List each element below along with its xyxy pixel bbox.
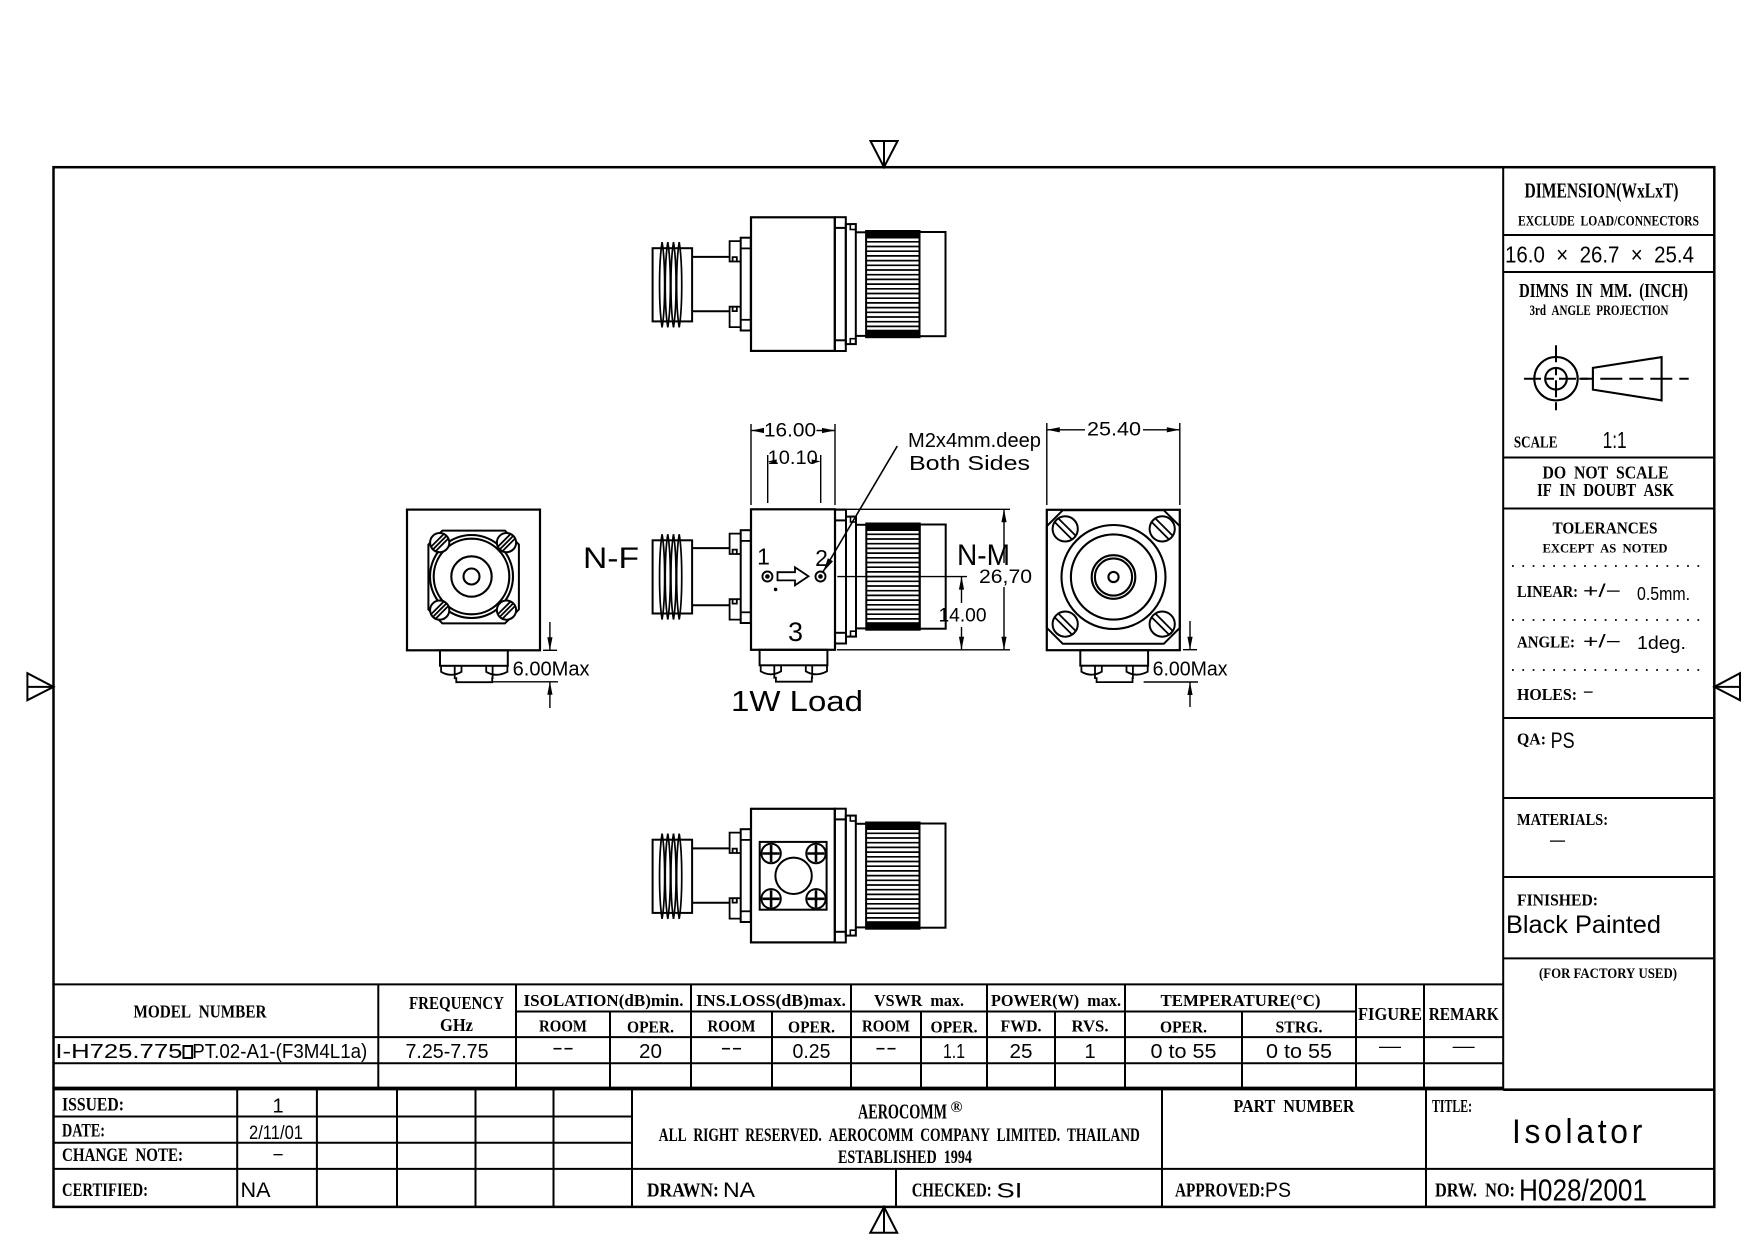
svg-text:0.25: 0.25	[793, 1041, 831, 1063]
svg-text:H028/2001: H028/2001	[1519, 1173, 1647, 1208]
svg-text:6.00Max: 6.00Max	[1153, 659, 1228, 681]
svg-text:−: −	[1583, 682, 1594, 702]
svg-text:DIMENSION(WxLxT): DIMENSION(WxLxT)	[1525, 179, 1679, 203]
svg-text:STRG.: STRG.	[1276, 1018, 1323, 1037]
svg-text:(FOR FACTORY USED): (FOR FACTORY USED)	[1539, 966, 1677, 982]
svg-text:NA: NA	[241, 1179, 271, 1202]
svg-text:CHANGE NOTE:: CHANGE NOTE:	[62, 1145, 183, 1166]
svg-text:1: 1	[757, 544, 770, 570]
svg-text:SCALE: SCALE	[1514, 433, 1558, 452]
svg-text:1: 1	[272, 1096, 283, 1118]
svg-text:ALL RIGHT RESERVED. AEROCOM: ALL RIGHT RESERVED. AEROCOMM COMPANY LIM…	[659, 1125, 1140, 1146]
svg-text:1:1: 1:1	[1603, 427, 1627, 453]
svg-text:7.25-7.75: 7.25-7.75	[406, 1041, 489, 1063]
svg-text:OPER.: OPER.	[931, 1018, 978, 1037]
svg-text:OPER.: OPER.	[788, 1018, 835, 1037]
svg-text:®: ®	[951, 1099, 963, 1116]
svg-text:EXCLUDE LOAD/CONNECTORS: EXCLUDE LOAD/CONNECTORS	[1518, 214, 1699, 230]
svg-text:GHz: GHz	[440, 1015, 473, 1035]
svg-text:20: 20	[639, 1041, 662, 1063]
svg-text:DATE:: DATE:	[62, 1120, 105, 1141]
svg-text:1W Load: 1W Load	[731, 686, 863, 718]
svg-text:0 to 55: 0 to 55	[1266, 1041, 1332, 1063]
svg-text:SI: SI	[996, 1180, 1022, 1203]
svg-text:ANGLE:: ANGLE:	[1517, 633, 1575, 652]
svg-text:14.00: 14.00	[939, 606, 987, 627]
svg-text:APPROVED:: APPROVED:	[1175, 1180, 1265, 1202]
svg-text:26,70: 26,70	[979, 567, 1032, 588]
svg-text:1: 1	[1084, 1041, 1095, 1063]
svg-text:Both Sides: Both Sides	[909, 453, 1030, 475]
svg-text:CHECKED:: CHECKED:	[912, 1180, 992, 1202]
svg-text:MODEL NUMBER: MODEL NUMBER	[134, 1002, 268, 1022]
svg-text:INS.LOSS(dB)max.: INS.LOSS(dB)max.	[696, 991, 846, 1010]
svg-text:N-F: N-F	[583, 542, 639, 575]
svg-text:ISOLATION(dB)min.: ISOLATION(dB)min.	[524, 991, 684, 1010]
svg-text:PS: PS	[1265, 1179, 1291, 1202]
svg-text:IF IN DOUBT ASK: IF IN DOUBT ASK	[1537, 480, 1674, 500]
svg-text:DRAWN:: DRAWN:	[647, 1180, 719, 1202]
svg-text:DRW. NO:: DRW. NO:	[1435, 1180, 1515, 1202]
svg-text:2/11/01: 2/11/01	[249, 1123, 303, 1144]
svg-text:--: --	[721, 1037, 743, 1059]
svg-text:16.0 × 26.7 × 25.4: 16.0 × 26.7 × 25.4	[1505, 242, 1694, 268]
svg-text:−: −	[272, 1145, 283, 1166]
svg-text:VSWR max.: VSWR max.	[874, 991, 964, 1010]
svg-text:ROOM: ROOM	[708, 1017, 756, 1036]
svg-text:QA:: QA:	[1517, 730, 1546, 749]
svg-text:RVS.: RVS.	[1072, 1017, 1109, 1036]
svg-text:EXCEPT AS NOTED: EXCEPT AS NOTED	[1543, 541, 1668, 556]
svg-text:--: --	[552, 1037, 574, 1059]
svg-text:MATERIALS:: MATERIALS:	[1517, 810, 1608, 829]
svg-text:ISSUED:: ISSUED:	[62, 1095, 124, 1116]
svg-text:16.00: 16.00	[764, 421, 816, 442]
svg-text:10.10: 10.10	[768, 448, 818, 469]
svg-text:Isolator: Isolator	[1512, 1113, 1646, 1151]
svg-text:PS: PS	[1551, 728, 1575, 753]
svg-text:DIMNS IN MM. (INCH): DIMNS IN MM. (INCH)	[1519, 280, 1688, 302]
svg-text:POWER(W) max.: POWER(W) max.	[991, 991, 1121, 1010]
svg-text:FIGURE: FIGURE	[1358, 1004, 1422, 1024]
svg-text:AEROCOMM: AEROCOMM	[858, 1100, 947, 1124]
svg-text:LINEAR:: LINEAR:	[1517, 582, 1578, 601]
svg-text:CERTIFIED:: CERTIFIED:	[62, 1180, 148, 1201]
svg-text:Black Painted: Black Painted	[1506, 911, 1661, 939]
svg-text:0 to 55: 0 to 55	[1151, 1041, 1217, 1063]
svg-text:OPER.: OPER.	[627, 1018, 674, 1037]
svg-text:—: —	[1379, 1036, 1401, 1056]
svg-text:1deg.: 1deg.	[1637, 633, 1686, 653]
svg-text:REMARK: REMARK	[1429, 1004, 1499, 1024]
svg-text:25: 25	[1010, 1041, 1033, 1063]
svg-text:PT.02-A1-(F3M4L1a): PT.02-A1-(F3M4L1a)	[192, 1041, 367, 1063]
svg-text:TOLERANCES: TOLERANCES	[1553, 519, 1658, 538]
svg-text:OPER.: OPER.	[1160, 1018, 1207, 1037]
svg-text:ROOM: ROOM	[862, 1017, 910, 1036]
svg-text:+/−: +/−	[1583, 632, 1621, 652]
svg-text:—: —	[1453, 1036, 1475, 1056]
svg-text:1.1: 1.1	[943, 1041, 965, 1063]
svg-text:ROOM: ROOM	[539, 1017, 587, 1036]
svg-text:M2x4mm.deep: M2x4mm.deep	[908, 430, 1041, 452]
svg-text:0.5mm.: 0.5mm.	[1637, 584, 1690, 604]
svg-text:I-H725.775: I-H725.775	[55, 1041, 182, 1063]
svg-text:FWD.: FWD.	[1001, 1017, 1042, 1036]
svg-text:NA: NA	[723, 1179, 755, 1202]
svg-text:25.40: 25.40	[1087, 420, 1141, 441]
svg-text:3rd ANGLE PROJECTION: 3rd ANGLE PROJECTION	[1530, 303, 1669, 319]
svg-text:TEMPERATURE(°C): TEMPERATURE(°C)	[1161, 991, 1321, 1010]
svg-text:−: −	[1549, 831, 1567, 851]
svg-text:--: --	[875, 1037, 897, 1059]
svg-text:3: 3	[788, 617, 803, 647]
svg-text:PART NUMBER: PART NUMBER	[1234, 1096, 1356, 1116]
svg-text:TITLE:: TITLE:	[1432, 1096, 1472, 1116]
svg-text:6.00Max: 6.00Max	[513, 659, 590, 681]
svg-text:FINISHED:: FINISHED:	[1517, 891, 1598, 910]
svg-text:+/−: +/−	[1583, 581, 1621, 601]
svg-text:HOLES:: HOLES:	[1517, 685, 1577, 704]
svg-text:FREQUENCY: FREQUENCY	[409, 993, 504, 1013]
svg-text:ESTABLISHED 1994: ESTABLISHED 1994	[838, 1147, 972, 1168]
